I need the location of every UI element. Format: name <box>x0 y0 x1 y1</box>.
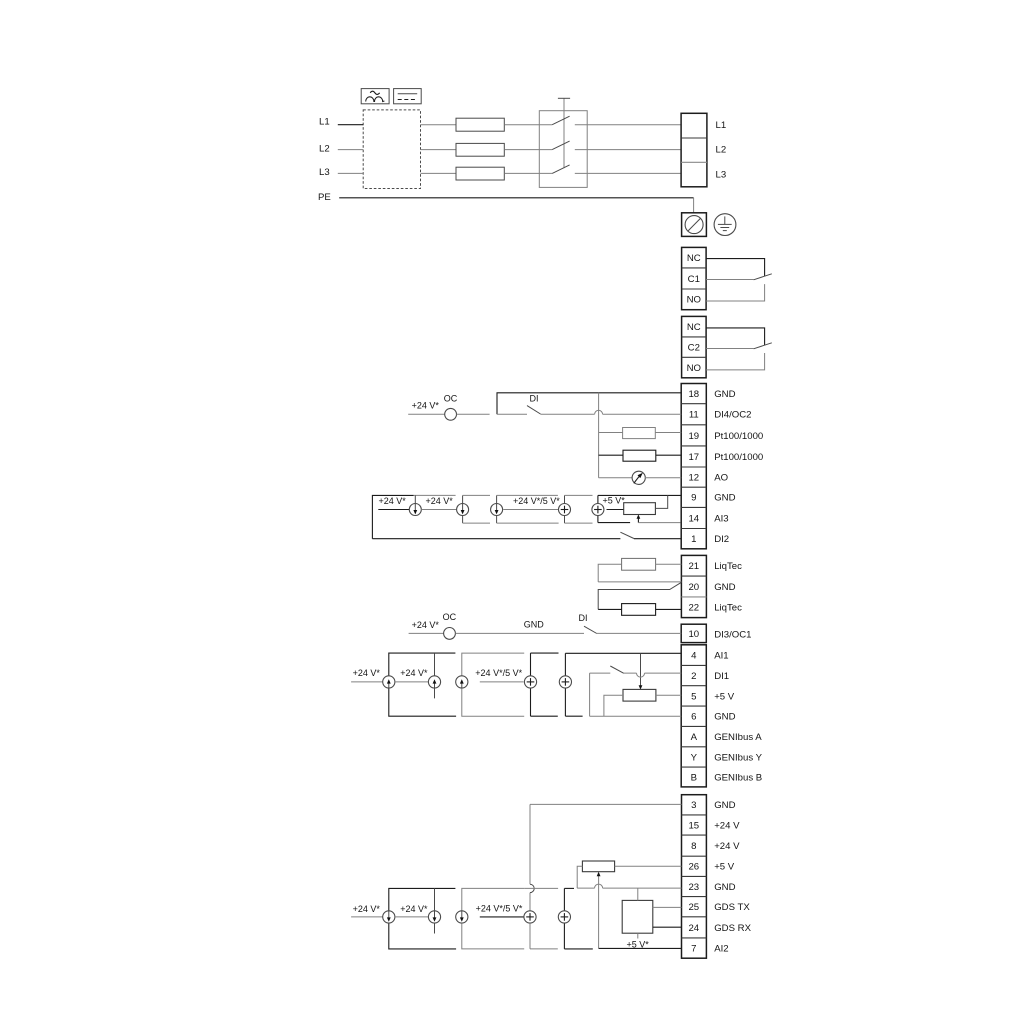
svg-text:5: 5 <box>691 691 696 702</box>
svg-text:GND: GND <box>714 712 735 723</box>
svg-text:AI3: AI3 <box>714 513 728 524</box>
svg-text:B: B <box>691 773 697 784</box>
svg-text:A: A <box>691 732 698 743</box>
svg-text:2: 2 <box>691 671 696 682</box>
svg-text:1: 1 <box>691 534 696 545</box>
svg-text:17: 17 <box>688 452 699 463</box>
svg-text:GENIbus Y: GENIbus Y <box>714 752 762 763</box>
svg-text:9: 9 <box>691 493 696 504</box>
svg-text:NO: NO <box>687 295 701 306</box>
svg-text:DI: DI <box>579 613 588 623</box>
svg-text:+5 V: +5 V <box>714 691 735 702</box>
svg-text:PE: PE <box>318 192 331 203</box>
svg-text:DI4/OC2: DI4/OC2 <box>714 410 751 421</box>
svg-text:24: 24 <box>688 923 699 934</box>
svg-text:7: 7 <box>691 943 696 954</box>
svg-text:+24 V*: +24 V* <box>426 496 454 506</box>
svg-text:19: 19 <box>688 431 699 442</box>
svg-text:4: 4 <box>691 651 697 662</box>
svg-text:Pt100/1000: Pt100/1000 <box>714 452 763 463</box>
svg-text:DI1: DI1 <box>714 671 729 682</box>
svg-text:+24 V*: +24 V* <box>353 668 381 678</box>
svg-text:L3: L3 <box>319 167 330 178</box>
svg-text:26: 26 <box>688 862 699 873</box>
svg-text:+24 V*: +24 V* <box>400 668 428 678</box>
svg-text:22: 22 <box>688 603 699 614</box>
svg-text:+24 V*: +24 V* <box>400 904 428 914</box>
svg-text:+24 V*: +24 V* <box>379 496 407 506</box>
svg-text:14: 14 <box>688 513 699 524</box>
svg-text:GND: GND <box>524 619 545 629</box>
svg-text:GDS TX: GDS TX <box>714 902 750 913</box>
svg-text:23: 23 <box>688 882 699 893</box>
svg-text:+5 V*: +5 V* <box>627 939 650 949</box>
svg-text:AI1: AI1 <box>714 651 728 662</box>
svg-text:GND: GND <box>714 493 735 504</box>
svg-text:15: 15 <box>688 820 699 831</box>
svg-text:DI3/OC1: DI3/OC1 <box>714 629 751 640</box>
svg-text:L2: L2 <box>716 145 727 156</box>
svg-text:6: 6 <box>691 712 696 723</box>
svg-text:GDS RX: GDS RX <box>714 923 751 934</box>
svg-text:10: 10 <box>688 629 699 640</box>
svg-text:+24 V*/5 V*: +24 V*/5 V* <box>513 496 560 506</box>
svg-text:+24 V*: +24 V* <box>353 904 381 914</box>
svg-text:Y: Y <box>691 752 698 763</box>
svg-text:LiqTec: LiqTec <box>714 603 742 614</box>
svg-text:LiqTec: LiqTec <box>714 561 742 572</box>
svg-text:25: 25 <box>688 902 699 913</box>
svg-text:DI: DI <box>530 394 539 404</box>
svg-text:GND: GND <box>714 582 735 593</box>
svg-text:GND: GND <box>714 800 735 811</box>
svg-text:3: 3 <box>691 800 696 811</box>
svg-text:+24 V*/5 V*: +24 V*/5 V* <box>476 904 523 914</box>
svg-text:Pt100/1000: Pt100/1000 <box>714 431 763 442</box>
svg-text:8: 8 <box>691 841 696 852</box>
svg-text:C1: C1 <box>688 274 700 285</box>
svg-text:+5 V*: +5 V* <box>603 495 626 505</box>
svg-text:NC: NC <box>687 253 701 264</box>
svg-text:OC: OC <box>443 612 457 622</box>
svg-text:21: 21 <box>688 561 699 572</box>
svg-text:+24 V: +24 V <box>714 841 740 852</box>
svg-text:AO: AO <box>714 473 728 484</box>
svg-text:NC: NC <box>687 322 701 333</box>
svg-text:18: 18 <box>688 389 699 400</box>
svg-text:C2: C2 <box>688 342 700 353</box>
svg-text:20: 20 <box>688 582 699 593</box>
svg-text:GND: GND <box>714 882 735 893</box>
svg-text:L2: L2 <box>319 144 330 155</box>
svg-text:L1: L1 <box>716 120 727 131</box>
svg-text:12: 12 <box>688 473 699 484</box>
svg-text:NO: NO <box>687 363 701 374</box>
svg-text:L1: L1 <box>319 117 330 128</box>
svg-text:OC: OC <box>444 394 458 404</box>
svg-text:AI2: AI2 <box>714 943 728 954</box>
svg-text:GENIbus A: GENIbus A <box>714 732 762 743</box>
svg-text:DI2: DI2 <box>714 534 729 545</box>
svg-text:+24 V*: +24 V* <box>412 620 440 630</box>
svg-text:GENIbus B: GENIbus B <box>714 773 762 784</box>
svg-text:+24 V*: +24 V* <box>412 400 440 410</box>
svg-text:GND: GND <box>714 389 735 400</box>
svg-text:L3: L3 <box>716 169 727 180</box>
svg-text:+5 V: +5 V <box>714 862 735 873</box>
svg-text:11: 11 <box>689 410 699 421</box>
svg-text:+24 V: +24 V <box>714 820 740 831</box>
svg-text:+24 V*/5 V*: +24 V*/5 V* <box>475 668 522 678</box>
